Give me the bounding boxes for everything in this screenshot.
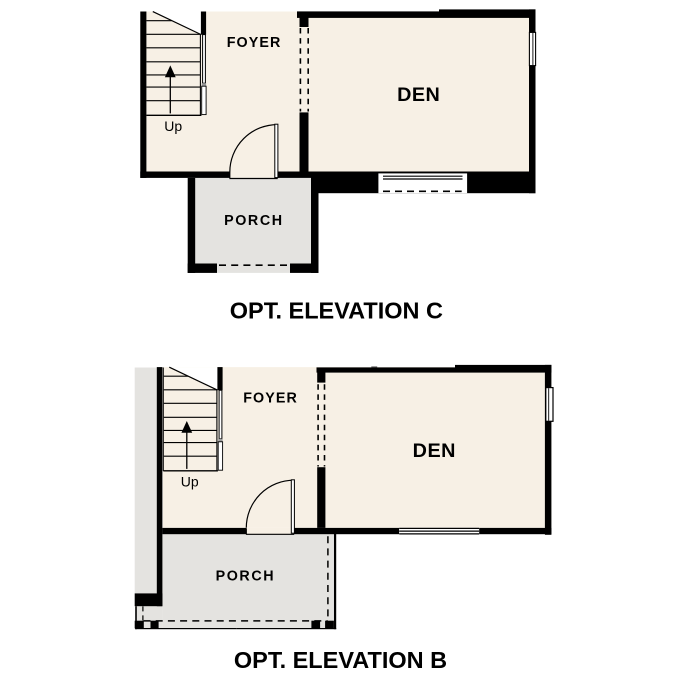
svg-text:FOYER: FOYER <box>227 35 282 51</box>
svg-text:DEN: DEN <box>397 84 440 106</box>
svg-text:OPT. ELEVATION B: OPT. ELEVATION B <box>234 647 447 673</box>
svg-text:PORCH: PORCH <box>216 569 276 585</box>
svg-text:Up: Up <box>164 118 182 134</box>
svg-text:OPT. ELEVATION C: OPT. ELEVATION C <box>230 297 443 323</box>
svg-text:DEN: DEN <box>413 440 456 462</box>
svg-text:PORCH: PORCH <box>224 213 284 229</box>
svg-text:Up: Up <box>181 473 199 489</box>
svg-text:FOYER: FOYER <box>243 390 298 406</box>
